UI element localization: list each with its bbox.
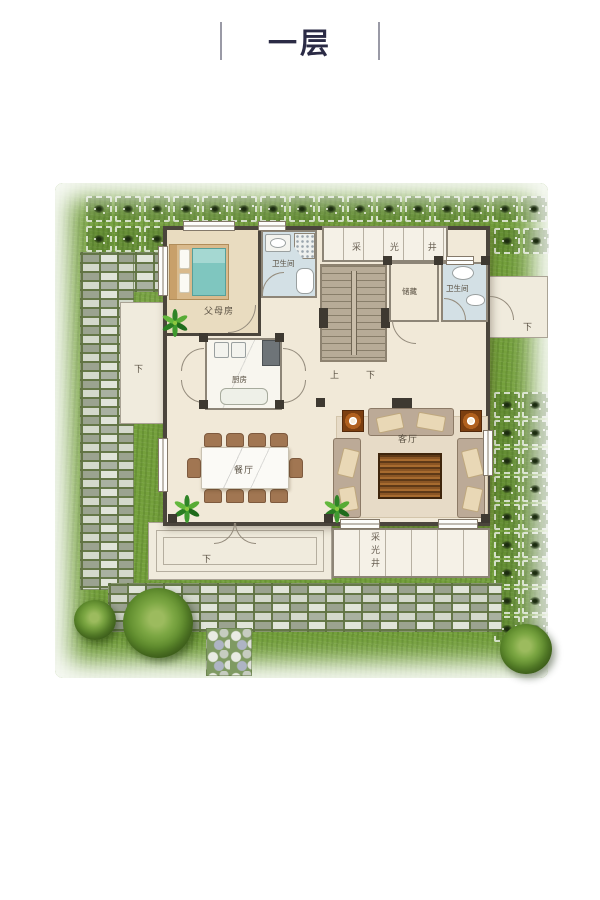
label-step-left: 下 <box>134 362 144 375</box>
wall-column <box>168 514 177 523</box>
coffee-table <box>378 453 442 499</box>
planting-bed <box>347 196 373 222</box>
dining-chair <box>226 489 244 503</box>
window <box>340 519 380 529</box>
planting-bed <box>522 504 548 530</box>
planting-bed <box>376 196 402 222</box>
planting-bed <box>86 226 112 252</box>
label-stairs-up: 上 <box>330 368 340 381</box>
tree-icon <box>123 588 193 658</box>
speaker-icon <box>342 410 364 432</box>
wall-column <box>199 333 208 342</box>
planting-row-top <box>86 196 547 222</box>
page-header: 一层 <box>0 18 600 64</box>
planting-bed <box>231 196 257 222</box>
window <box>258 221 286 231</box>
window <box>183 221 235 231</box>
window <box>158 438 168 492</box>
planting-bed <box>494 448 520 474</box>
wall-column <box>383 256 392 265</box>
planting-bed <box>463 196 489 222</box>
light-well-bottom <box>332 528 490 578</box>
stove <box>262 340 280 366</box>
window <box>446 256 474 265</box>
dining-chair <box>270 489 288 503</box>
planting-bed <box>522 532 548 558</box>
planting-bed <box>522 392 548 418</box>
sink-basin <box>452 266 474 280</box>
wall-column <box>199 400 208 409</box>
bed-pillow <box>179 249 190 269</box>
label-kitchen: 厨房 <box>232 374 247 385</box>
sofa-right <box>457 438 485 518</box>
bed-pillow <box>179 273 190 293</box>
planting-bed <box>115 226 141 252</box>
dining-chair <box>187 458 201 478</box>
bed-mattress <box>192 248 226 296</box>
planting-bed <box>492 196 518 222</box>
dining-chair <box>204 489 222 503</box>
planting-bed <box>115 196 141 222</box>
wall-column <box>316 398 325 407</box>
tree-icon <box>74 600 116 640</box>
planting-bed <box>494 392 520 418</box>
toilet <box>466 294 485 306</box>
planting-bed <box>260 196 286 222</box>
label-bathroom-1: 卫生间 <box>272 258 295 269</box>
planting-bed <box>522 420 548 446</box>
speaker-icon <box>460 410 482 432</box>
bed-headboard <box>170 245 177 299</box>
planting-bed <box>521 196 547 222</box>
dining-chair <box>226 433 244 447</box>
kitchen-sink <box>214 342 229 358</box>
planting-bed <box>494 476 520 502</box>
planting-bed <box>173 196 199 222</box>
planting-bed <box>405 196 431 222</box>
wall-column <box>275 400 284 409</box>
planting-bed <box>144 196 170 222</box>
dining-chair <box>248 433 266 447</box>
tree-icon <box>500 624 552 674</box>
planting-bed <box>522 560 548 586</box>
planting-bed <box>494 504 520 530</box>
planting-bed <box>494 420 520 446</box>
bed <box>169 244 229 300</box>
wall-column <box>324 514 333 523</box>
label-step-front: 下 <box>202 552 212 565</box>
wall-column <box>481 514 490 523</box>
planting-bed <box>522 588 548 614</box>
sink-basin <box>270 238 286 248</box>
plant-icon <box>160 308 190 338</box>
dining-chair <box>248 489 266 503</box>
planting-column-right <box>494 392 550 642</box>
wall-column <box>275 333 284 342</box>
wall-column <box>481 256 490 265</box>
title-right-rule <box>378 22 380 60</box>
planting-bed <box>523 228 549 254</box>
label-light-well-bottom: 采光井 <box>368 532 381 571</box>
window <box>438 519 478 529</box>
label-dining: 餐厅 <box>234 463 254 476</box>
planting-bed <box>86 196 112 222</box>
dining-chair <box>270 433 288 447</box>
label-step-right: 下 <box>523 320 533 333</box>
kitchen-sink <box>231 342 246 358</box>
planting-bed <box>318 196 344 222</box>
kitchen-island <box>220 388 268 405</box>
porch-step-line <box>163 537 317 565</box>
label-living: 客厅 <box>398 432 418 445</box>
dining-chair <box>289 458 303 478</box>
label-storage: 储藏 <box>402 286 417 297</box>
planting-bed <box>434 196 460 222</box>
planting-bed <box>494 228 520 254</box>
window <box>158 246 168 296</box>
dining-chair <box>204 433 222 447</box>
window <box>483 430 493 476</box>
planting-bed <box>522 448 548 474</box>
stair-rail <box>351 271 357 355</box>
planting-bed <box>202 196 228 222</box>
tv-console <box>392 398 412 408</box>
planting-bed <box>522 476 548 502</box>
label-bathroom-2: 卫生间 <box>446 283 469 294</box>
wall-column <box>434 256 443 265</box>
wall-column <box>319 308 328 328</box>
staircase <box>320 264 387 362</box>
bathtub <box>296 268 314 294</box>
label-light-well-top: 采 光 井 <box>352 240 450 253</box>
page-title: 一层 <box>268 20 332 62</box>
planting-bed <box>494 532 520 558</box>
title-left-rule <box>220 22 222 60</box>
planting-row-top-right <box>494 228 549 254</box>
label-stairs-down: 下 <box>366 368 376 381</box>
planting-bed <box>289 196 315 222</box>
pebble-path <box>206 628 252 676</box>
